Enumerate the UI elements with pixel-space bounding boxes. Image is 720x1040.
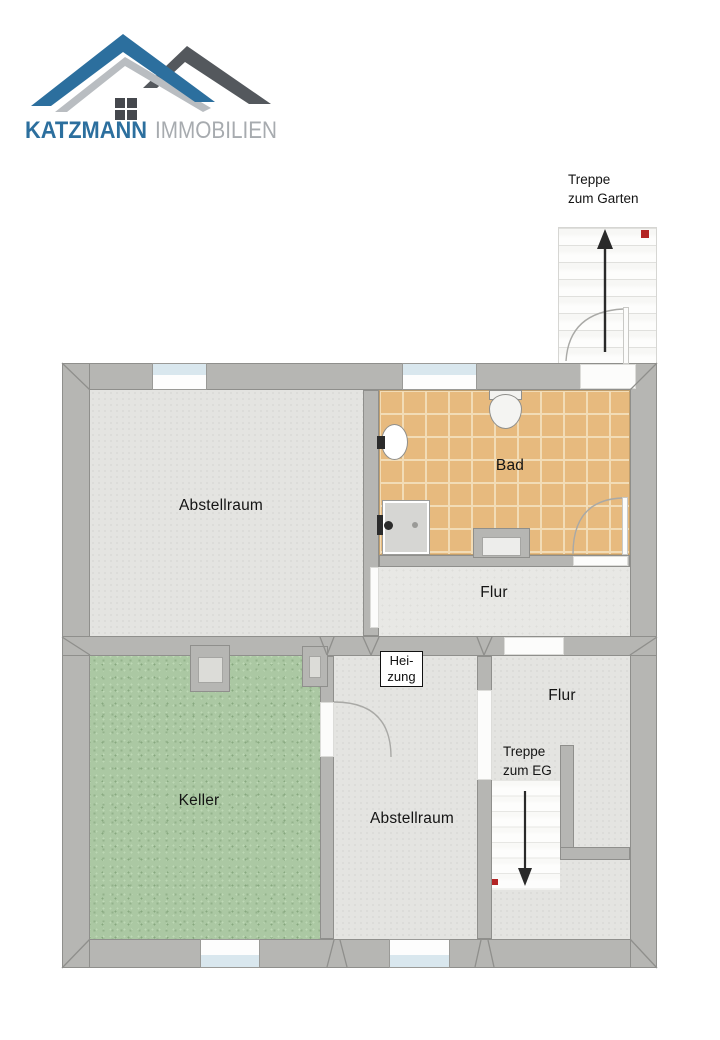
window-keller-bottom	[200, 939, 260, 968]
wall-keller-abstellraum	[320, 656, 334, 939]
room-flur-upper-label: Flur	[480, 584, 508, 602]
garden-stairs-label-line2: zum Garten	[568, 191, 639, 206]
door-opening-garden	[580, 364, 636, 389]
heizung-label-line1: Hei-	[390, 653, 414, 668]
bad-wall-niche-core	[482, 537, 521, 556]
company-logo: KATZMANN IMMOBILIEN	[15, 24, 295, 144]
heizung-label-line2: zung	[387, 669, 415, 684]
door-opening-flur-lower	[477, 690, 492, 780]
bad-door-leaf	[622, 497, 628, 555]
wall-stairwell-vertical	[560, 745, 574, 860]
room-abstellraum-bottom-floor	[334, 656, 477, 939]
garden-stairs	[558, 227, 657, 365]
room-abstellraum-bottom-label: Abstellraum	[370, 810, 454, 828]
wall-stairwell-horizontal	[560, 847, 630, 860]
room-keller-label: Keller	[179, 792, 220, 810]
room-flur-lower-label: Flur	[548, 687, 576, 705]
door-opening-abstellraum-flur-top	[370, 567, 379, 628]
shower-head-icon	[384, 521, 393, 530]
logo-brand-text: KATZMANN	[25, 117, 147, 144]
sink-faucet-icon	[377, 436, 385, 449]
chimney-keller-middle-core	[198, 657, 223, 683]
eg-stairs-marker	[492, 879, 498, 885]
eg-stairs-label-line1: Treppe	[503, 744, 545, 759]
eg-stairs-label-line2: zum EG	[503, 763, 552, 778]
garden-door-leaf	[623, 307, 629, 364]
door-opening-flur-passage	[504, 637, 564, 655]
floor-plan: KATZMANN IMMOBILIEN	[0, 0, 720, 1040]
window-abstellraum-top	[152, 363, 207, 390]
eg-stairs-label: Treppe zum EG	[503, 742, 552, 780]
logo-blue-roof-icon	[31, 34, 215, 106]
room-bad-label: Bad	[496, 457, 524, 475]
heizung-label-box: Hei- zung	[380, 651, 423, 687]
wall-bottom	[62, 939, 657, 968]
logo-brand-suffix-text: IMMOBILIEN	[155, 117, 277, 144]
door-opening-bad	[573, 556, 628, 566]
garden-stairs-marker	[641, 230, 649, 238]
window-bad-top	[402, 363, 477, 390]
eg-stairs	[492, 780, 560, 890]
chimney-keller-right-core	[309, 656, 321, 678]
room-abstellraum-top-label: Abstellraum	[179, 497, 263, 515]
shower-drain-icon	[412, 522, 418, 528]
garden-stairs-label: Treppe zum Garten	[568, 170, 639, 208]
garden-stairs-label-line1: Treppe	[568, 172, 610, 187]
wall-left	[62, 363, 90, 968]
shower-fixture-icon	[377, 515, 383, 535]
wall-right	[630, 363, 657, 968]
sink-icon	[381, 424, 408, 460]
wall-middle-horizontal	[62, 636, 657, 656]
window-abstellraum-bottom	[389, 939, 450, 968]
door-opening-keller	[320, 702, 334, 757]
